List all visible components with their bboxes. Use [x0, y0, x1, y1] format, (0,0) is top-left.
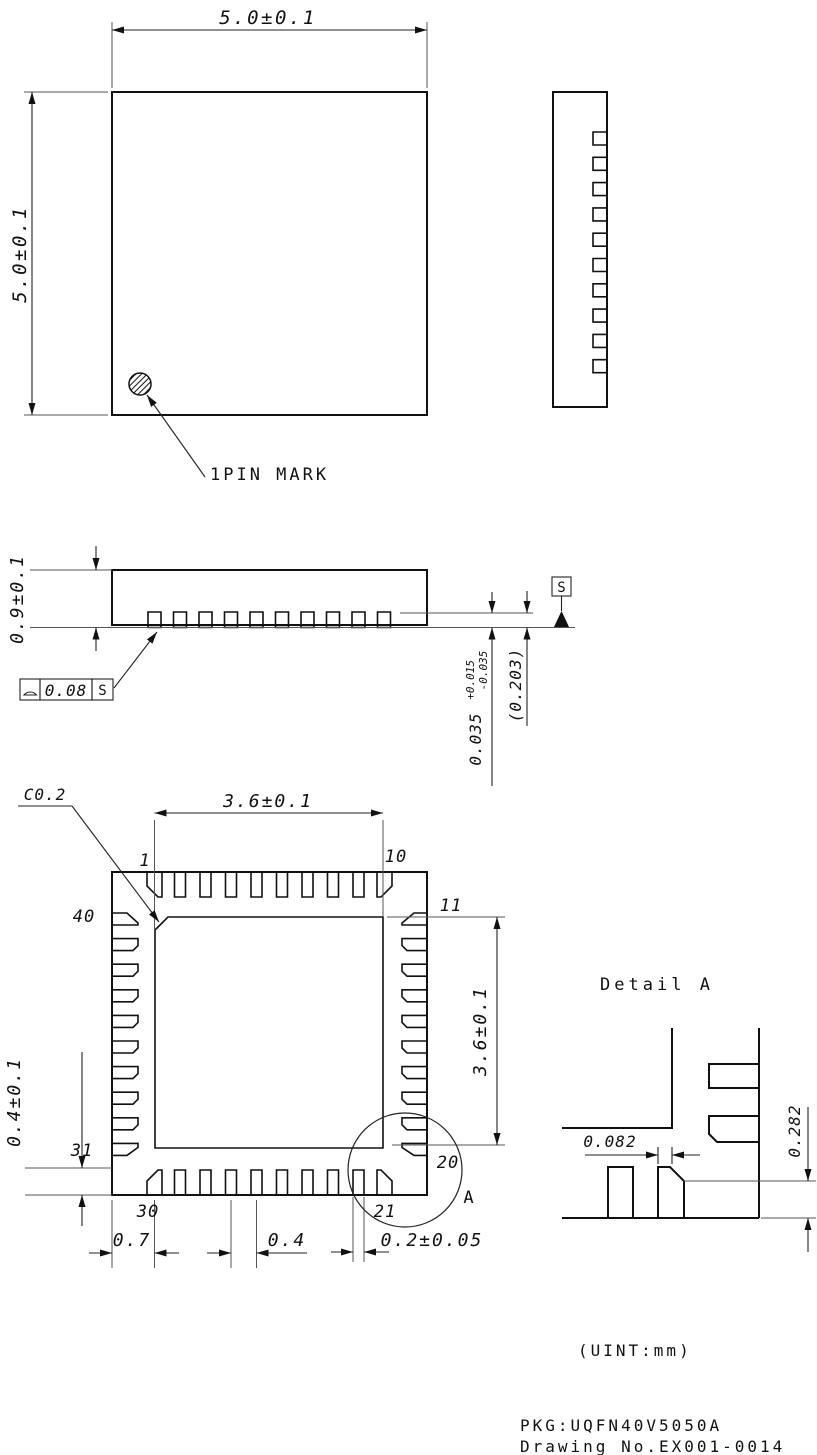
pin [402, 1015, 427, 1027]
pin-label-21: 21 [374, 1202, 396, 1222]
datum-triangle [554, 611, 569, 627]
pin1-mark-leader [147, 395, 205, 477]
detail-a-title: Detail A [600, 975, 714, 995]
profile-of-surface-icon [24, 692, 37, 695]
pin-label-1: 1 [139, 851, 150, 871]
detail-pin [608, 1167, 633, 1218]
dim-corner-offset: 0.4±0.1 [4, 1057, 25, 1147]
pin1-mark [129, 373, 151, 395]
pin [402, 1067, 427, 1079]
detail-pin [709, 1064, 759, 1088]
dim-detail-chamfer-height: 0.282 [785, 1104, 804, 1157]
pin [112, 1118, 138, 1130]
pin [112, 964, 138, 976]
extension-lines [684, 1181, 816, 1218]
pin [377, 872, 392, 897]
pin [402, 990, 427, 1002]
bottom-view-left-pins [112, 913, 138, 1155]
pin [112, 913, 138, 925]
pin [112, 1092, 138, 1104]
dim-pitch: 0.4 [268, 1230, 307, 1251]
pin [175, 872, 186, 897]
pin1-mark-label: 1PIN MARK [210, 465, 329, 485]
pin [277, 872, 288, 897]
pin [112, 1015, 138, 1027]
bottom-outline [112, 872, 427, 1195]
footer: (UINT:mm) PKG:UQFN40V5050A Drawing No.EX… [520, 1341, 785, 1455]
dim-detail-chamfer-width: 0.082 [583, 1132, 636, 1151]
fcf-tolerance: 0.08 [45, 681, 88, 700]
pin [402, 939, 427, 951]
pin [226, 1170, 237, 1195]
pin [402, 1118, 427, 1130]
pin [112, 1041, 138, 1053]
pin-label-40: 40 [73, 907, 95, 927]
pin [593, 157, 607, 170]
pin [112, 1143, 138, 1155]
pin [251, 1170, 262, 1195]
fcf-leader [114, 632, 157, 688]
bottom-view-right-pins [402, 913, 427, 1155]
dim-body-width: 5.0±0.1 [219, 7, 317, 29]
detail-a-ref: A [463, 1188, 476, 1208]
pin-label-11: 11 [440, 896, 462, 916]
pin [593, 208, 607, 221]
side-view-pins [593, 132, 607, 373]
pin [277, 1170, 288, 1195]
chamfer-callout: C0.2 [24, 785, 67, 804]
pin [593, 259, 607, 272]
dim-pad-height: 3.6±0.1 [470, 986, 491, 1077]
pin [175, 1170, 186, 1195]
datum-letter: S [557, 580, 565, 596]
pin [328, 872, 339, 897]
package-name: PKG:UQFN40V5050A [520, 1416, 722, 1435]
front-view: 0.9±0.1 0.035 +0.015 -0.035 (0.203) S 0.… [7, 546, 575, 786]
pin [377, 1170, 392, 1195]
pin-label-10: 10 [385, 847, 407, 867]
pin [251, 872, 262, 897]
detail-corner-pin [658, 1167, 684, 1218]
extension-lines [25, 820, 505, 1268]
pin [353, 1170, 364, 1195]
exposed-pad-outline [155, 917, 383, 1148]
pin [112, 990, 138, 1002]
detail-package-edges [562, 1028, 759, 1218]
detail-pin [709, 1116, 759, 1142]
dim-body-height: 5.0±0.1 [9, 205, 31, 303]
pin-label-31: 31 [70, 1141, 93, 1161]
detail-pad-corner [562, 1028, 672, 1128]
pin [200, 872, 211, 897]
dim-ref-height: (0.203) [506, 648, 525, 722]
dim-standoff: 0.035 +0.015 -0.035 [459, 650, 490, 765]
standoff-value: 0.035 [466, 712, 485, 765]
pin [593, 183, 607, 196]
dim-pin-width: 0.2±0.05 [381, 1230, 484, 1251]
pin-label-30: 30 [136, 1202, 159, 1222]
standoff-minus-tol: -0.035 [477, 651, 490, 691]
pin [593, 334, 607, 347]
pin [593, 360, 607, 373]
pin-label-20: 20 [437, 1153, 459, 1173]
fcf-symbol-cell [20, 679, 40, 700]
pin [593, 132, 607, 145]
pin [402, 913, 427, 925]
units-note: (UINT:mm) [578, 1341, 692, 1360]
pin [112, 939, 138, 951]
pin [593, 309, 607, 322]
pin [593, 284, 607, 297]
pin [402, 1092, 427, 1104]
standoff-plus-tol: +0.015 [464, 660, 477, 700]
dim-pad-width: 3.6±0.1 [222, 791, 313, 812]
extension-lines [24, 22, 427, 415]
detail-a-view: Detail A 0.082 0.282 [562, 975, 816, 1252]
pin [402, 964, 427, 976]
pin [147, 1170, 162, 1195]
pin [402, 1041, 427, 1053]
top-view: 5.0±0.1 5.0±0.1 1PIN MARK [9, 7, 427, 485]
drawing-number: Drawing No.EX001-0014 [520, 1437, 785, 1455]
pin [328, 1170, 339, 1195]
fcf-datum-ref: S [98, 683, 106, 699]
front-outline [112, 570, 427, 625]
dim-edge-to-pin: 0.7 [113, 1230, 152, 1251]
pin [593, 233, 607, 246]
bottom-view-bottom-pins [147, 1170, 392, 1195]
pin [302, 872, 313, 897]
feature-control-frame: 0.08 S [20, 632, 157, 700]
package-body-outline [112, 92, 427, 415]
bottom-view: 3.6±0.1 3.6±0.1 0.4±0.1 0.7 0.4 0.2±0.05… [4, 785, 505, 1268]
pin [112, 1067, 138, 1079]
side-view [553, 92, 607, 407]
pin [226, 872, 237, 897]
dim-ticks [658, 1147, 672, 1164]
pin [302, 1170, 313, 1195]
dim-package-height: 0.9±0.1 [7, 554, 28, 644]
bottom-view-top-pins [147, 872, 392, 897]
pin [200, 1170, 211, 1195]
package-drawing-sheet: 5.0±0.1 5.0±0.1 1PIN MARK 0.9±0.1 0.035 … [0, 0, 817, 1455]
pin [353, 872, 364, 897]
